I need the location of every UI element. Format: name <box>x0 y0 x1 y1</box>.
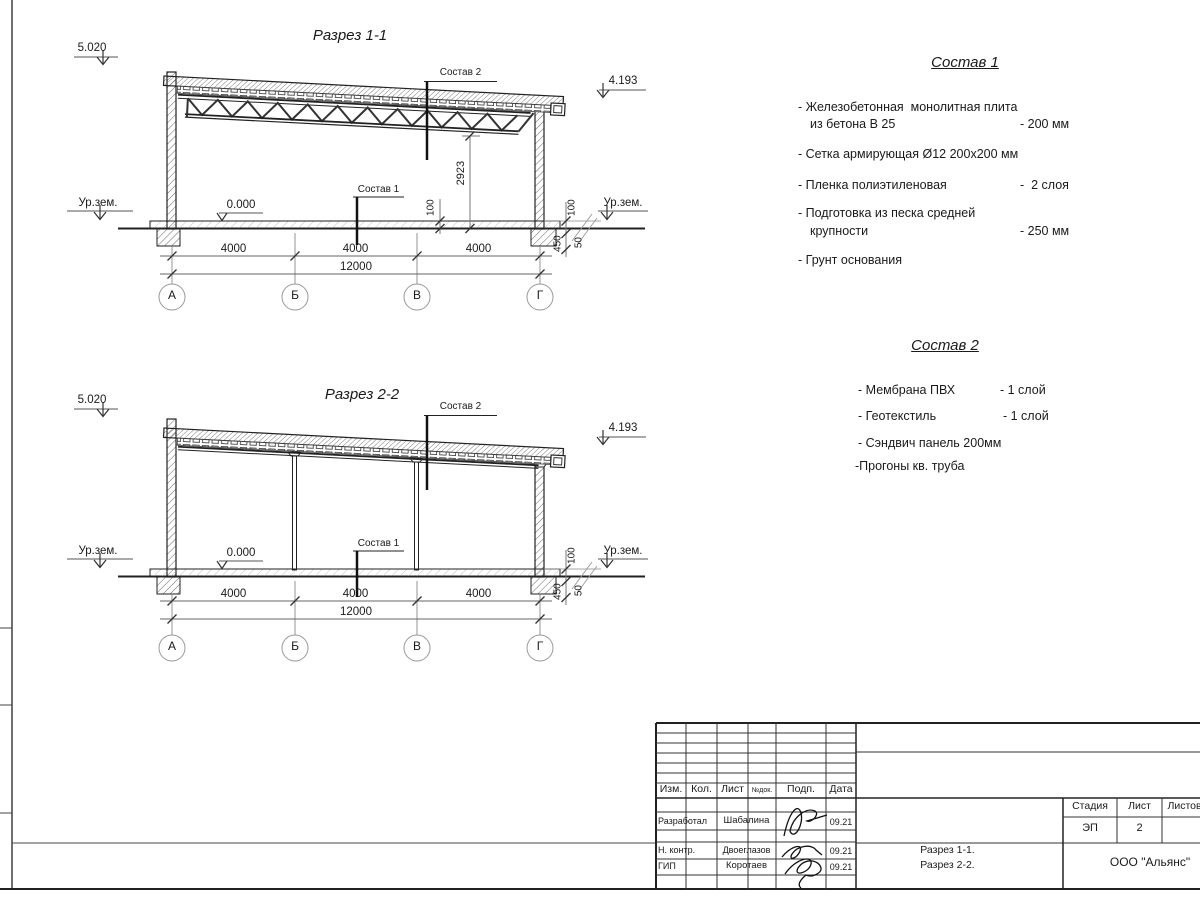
section-1-span-dim: 4000 <box>325 243 386 256</box>
titleblock-stage-value: ЭП <box>1063 822 1117 834</box>
section-2-span-dim: 4000 <box>325 588 386 601</box>
section-2-ground-label-right: Ур.зем. <box>596 545 650 558</box>
titleblock-sheet-value: 2 <box>1117 822 1162 834</box>
sostav2-item: - Геотекстиль <box>858 409 936 423</box>
section-1-leader-sostav2: Состав 2 <box>424 67 497 78</box>
section-1-span-dim: 4000 <box>203 243 264 256</box>
sostav1-item: - Пленка полиэтиленовая <box>798 178 947 192</box>
section-2-axis-v: В <box>404 640 430 653</box>
signature-dvoeglazov <box>782 846 822 858</box>
sostav2-title: Состав 2 <box>905 338 985 355</box>
titleblock-col-list: Лист <box>717 784 748 796</box>
titleblock-date: 09.21 <box>826 846 856 856</box>
titleblock-name: Коротаев <box>717 861 776 872</box>
drawing-sheet: Разрез 1-1 5.020 4.193 Состав 2 Состав 1… <box>0 0 1200 900</box>
sostav1-item: - Сетка армирующая Ø12 200х200 мм <box>798 147 1018 161</box>
sostav2-item-value: - 1 слой <box>1003 409 1049 423</box>
section-2-dim-right-450: 450 <box>552 574 563 610</box>
section-1-span-dim: 4000 <box>448 243 509 256</box>
section-2-zero-level: 0.000 <box>219 547 263 560</box>
titleblock-sheets-label: Листов <box>1162 801 1200 813</box>
section-1-dim-right-50: 50 <box>573 225 584 261</box>
titleblock-date: 09.21 <box>826 817 856 827</box>
sostav2-item: - Сэндвич панель 200мм <box>858 436 1001 450</box>
signature-korotaev <box>785 859 821 888</box>
section-2-axis-a: А <box>159 640 185 653</box>
titleblock-sheet-label: Лист <box>1117 801 1162 813</box>
section-1-dim-2923: 2923 <box>455 153 467 193</box>
signature-shabalina <box>784 809 827 836</box>
sostav2-item: -Прогоны кв. труба <box>855 459 964 473</box>
section-1-elevation-left: 5.020 <box>70 42 114 55</box>
section-1-title: Разрез 1-1 <box>280 28 420 45</box>
section-1-ground-label-left: Ур.зем. <box>64 197 132 210</box>
titleblock-role: ГИП <box>658 861 676 871</box>
section-2-span-dim: 4000 <box>448 588 509 601</box>
sostav1-item: - Железобетонная монолитная плита <box>798 100 1017 114</box>
sostav1-item: из бетона В 25 <box>810 117 895 131</box>
section-2-elevation-left: 5.020 <box>70 394 114 407</box>
titleblock-doc-title-line1: Разрез 1-1. <box>860 845 1035 857</box>
titleblock-company: ООО "Альянс" <box>1075 856 1200 869</box>
titleblock-name: Двоеглазов <box>717 845 776 855</box>
section-2-dim-right-100: 100 <box>566 538 577 574</box>
section-2-ground-label-left: Ур.зем. <box>64 545 132 558</box>
section-2-dim-right-50: 50 <box>573 573 584 609</box>
sostav1-item: - Грунт основания <box>798 253 902 267</box>
section-1-total-dim: 12000 <box>326 261 386 274</box>
sostav1-item: - Подготовка из песка средней <box>798 206 975 220</box>
section-1-dim-right-100: 100 <box>566 190 577 226</box>
sostav2-item-value: - 1 слой <box>1000 383 1046 397</box>
section-2-span-dim: 4000 <box>203 588 264 601</box>
sostav1-item: крупности <box>810 224 868 238</box>
section-1-axis-a: А <box>159 289 185 302</box>
titleblock-name: Шабалина <box>717 816 776 827</box>
section-1-dim-floor-100: 100 <box>425 190 436 226</box>
titleblock-col-ndok: №док. <box>748 787 776 795</box>
titleblock-col-kol: Кол. <box>686 784 717 796</box>
section-2-title: Разрез 2-2 <box>292 387 432 404</box>
titleblock-stage-label: Стадия <box>1063 801 1117 813</box>
titleblock-role: Н. контр. <box>658 845 695 855</box>
section-2-drawing <box>67 402 648 661</box>
sostav1-title: Состав 1 <box>925 55 1005 72</box>
titleblock-col-data: Дата <box>826 784 856 796</box>
section-2-elevation-right: 4.193 <box>600 422 646 435</box>
section-1-zero-level: 0.000 <box>219 199 263 212</box>
titleblock-col-izm: Изм. <box>656 784 686 796</box>
section-1-leader-sostav1: Состав 1 <box>353 184 404 195</box>
titleblock-doc-title-line2: Разрез 2-2. <box>860 860 1035 872</box>
section-1-axis-v: В <box>404 289 430 302</box>
titleblock-role: Разработал <box>658 816 707 826</box>
sostav1-item-value: - 200 мм <box>1020 117 1069 131</box>
section-2-axis-g: Г <box>527 640 553 653</box>
section-2-axis-b: Б <box>282 640 308 653</box>
titleblock-date: 09.21 <box>826 862 856 872</box>
section-1-dim-right-450: 450 <box>552 226 563 262</box>
section-2-leader-sostav1: Состав 1 <box>353 538 404 549</box>
drawing-linework <box>0 0 1200 900</box>
sostav1-item-value: - 2 слоя <box>1020 178 1069 192</box>
section-1-elevation-right: 4.193 <box>600 75 646 88</box>
sostav2-item: - Мембрана ПВХ <box>858 383 955 397</box>
sostav1-item-value: - 250 мм <box>1020 224 1069 238</box>
section-2-leader-sostav2: Состав 2 <box>424 401 497 412</box>
section-1-axis-b: Б <box>282 289 308 302</box>
section-1-axis-g: Г <box>527 289 553 302</box>
section-2-total-dim: 12000 <box>326 606 386 619</box>
titleblock-col-podp: Подп. <box>776 784 826 796</box>
section-1-ground-label-right: Ур.зем. <box>596 197 650 210</box>
